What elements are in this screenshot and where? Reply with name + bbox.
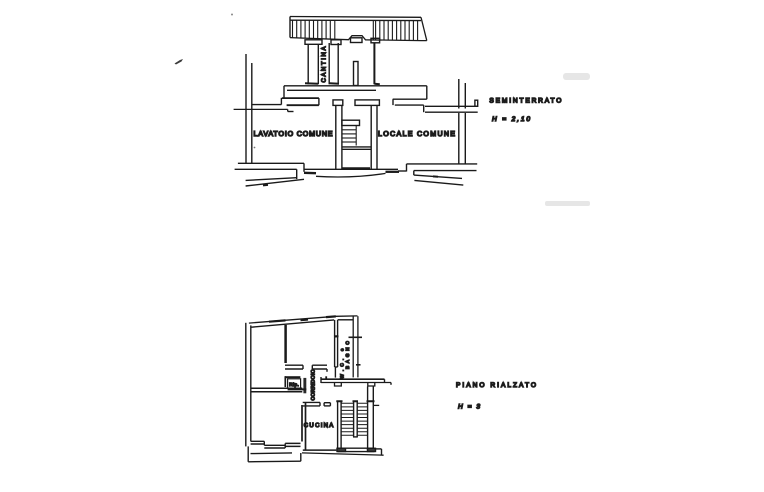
svg-text:Rip.: Rip. [289,382,299,387]
svg-text:LOCALE COMUNE: LOCALE COMUNE [378,130,455,138]
svg-text:H = 3: H = 3 [458,404,480,411]
svg-text:CORRIDOIO: CORRIDOIO [310,369,316,400]
svg-text:LAVATOIO COMUNE: LAVATOIO COMUNE [254,130,333,138]
